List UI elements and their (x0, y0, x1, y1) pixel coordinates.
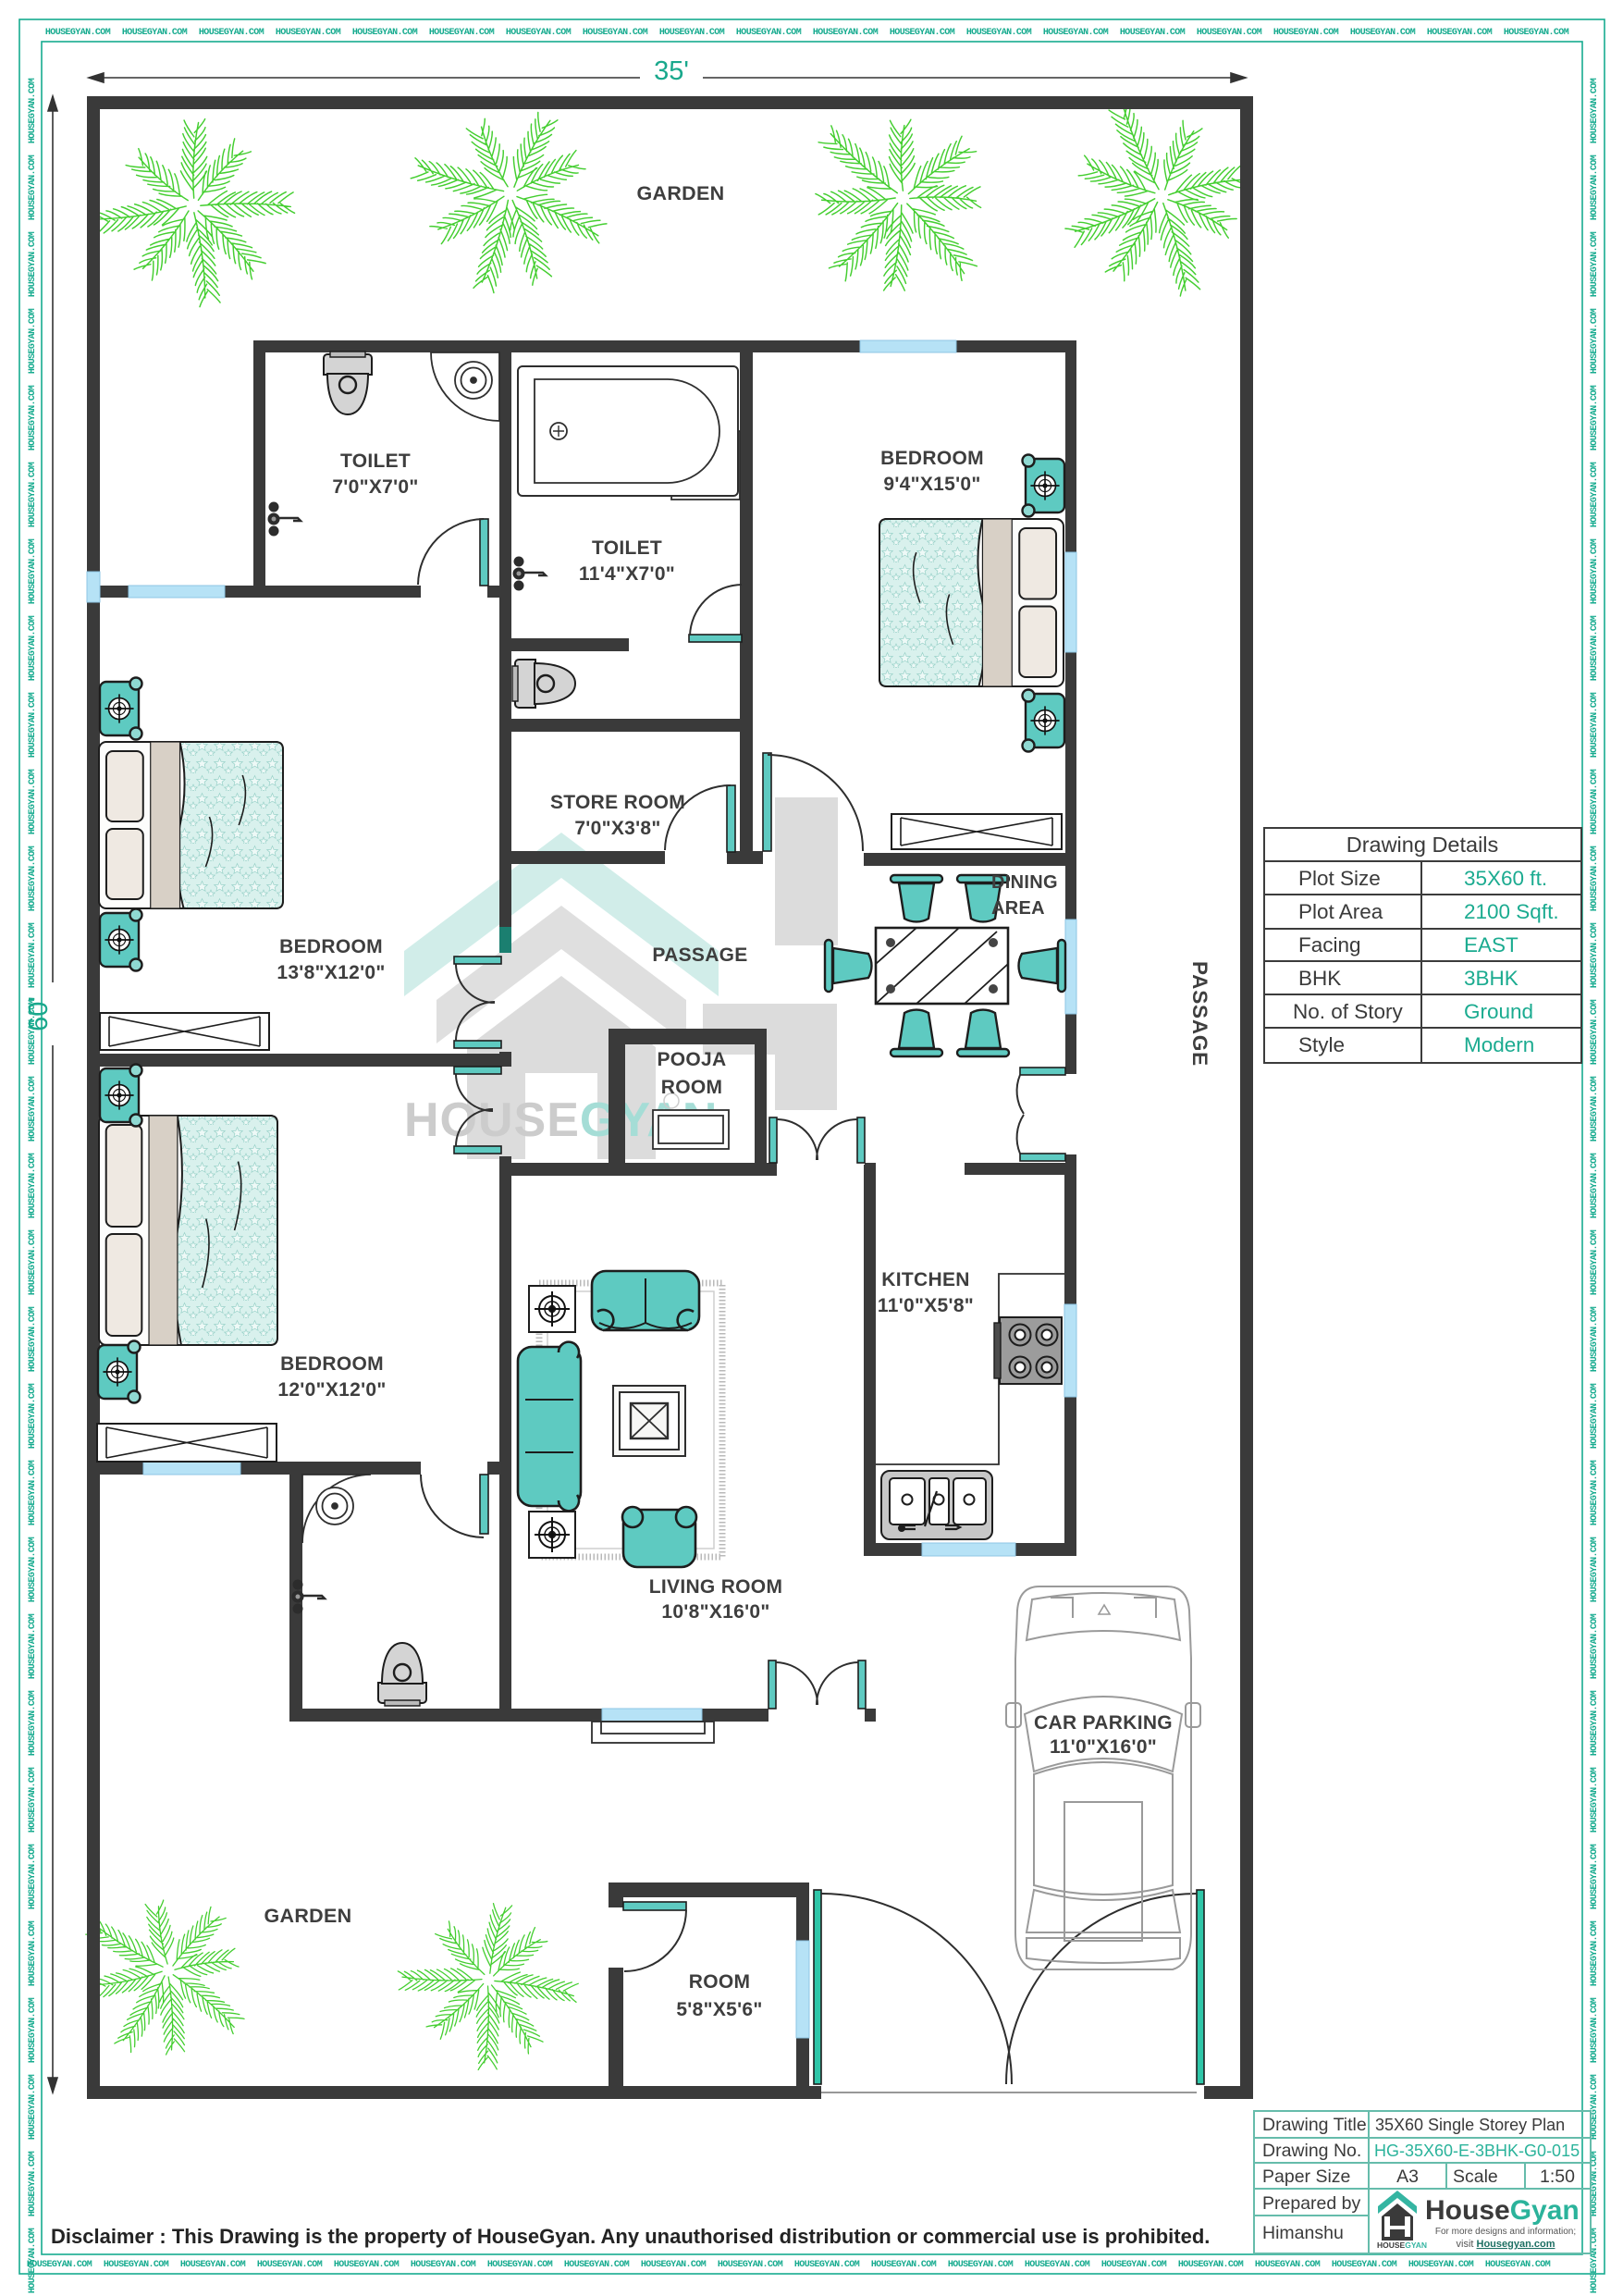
svg-text:Himanshu: Himanshu (1262, 2223, 1344, 2243)
svg-text:Facing: Facing (1298, 933, 1361, 957)
svg-text:Disclaimer : This Drawing is t: Disclaimer : This Drawing is the propert… (51, 2225, 1210, 2248)
svg-text:A3: A3 (1396, 2166, 1419, 2187)
svg-text:HOUSEGYAN: HOUSEGYAN (1377, 2240, 1427, 2250)
svg-text:Ground: Ground (1464, 1000, 1533, 1023)
svg-text:35X60 Single Storey Plan: 35X60 Single Storey Plan (1375, 2116, 1565, 2134)
svg-text:GARDEN: GARDEN (264, 1905, 352, 1927)
svg-text:EAST: EAST (1464, 933, 1518, 957)
svg-text:Plot Area: Plot Area (1298, 900, 1383, 923)
svg-text:Modern: Modern (1464, 1033, 1534, 1056)
svg-text:Style: Style (1298, 1033, 1345, 1056)
svg-text:Drawing Title: Drawing Title (1262, 2115, 1367, 2135)
svg-text:HG-35X60-E-3BHK-G0-015: HG-35X60-E-3BHK-G0-015 (1374, 2142, 1580, 2160)
svg-text:Drawing Details: Drawing Details (1346, 833, 1499, 857)
svg-text:35': 35' (654, 56, 689, 86)
svg-text:For more designs and informati: For more designs and information; (1435, 2227, 1576, 2237)
svg-text:35X60 ft.: 35X60 ft. (1464, 867, 1547, 890)
svg-text:60': 60' (24, 996, 54, 1031)
svg-text:PASSAGE: PASSAGE (652, 944, 747, 966)
svg-text:GARDEN: GARDEN (637, 182, 725, 204)
svg-text:BHK: BHK (1298, 967, 1341, 990)
svg-text:Paper Size: Paper Size (1262, 2166, 1350, 2187)
svg-text:No. of Story: No. of Story (1293, 1000, 1404, 1023)
svg-text:Prepared by: Prepared by (1262, 2193, 1360, 2214)
svg-text:1:50: 1:50 (1540, 2166, 1575, 2187)
svg-text:PASSAGE: PASSAGE (1188, 961, 1211, 1067)
svg-text:Scale: Scale (1453, 2166, 1498, 2187)
svg-text:Drawing No.: Drawing No. (1262, 2141, 1361, 2161)
svg-text:Plot Size: Plot Size (1298, 867, 1381, 890)
svg-text:HouseGyan: HouseGyan (1425, 2195, 1580, 2226)
svg-text:3BHK: 3BHK (1464, 967, 1518, 990)
svg-text:2100 Sqft.: 2100 Sqft. (1464, 900, 1559, 923)
svg-text:visit Housegyan.com: visit Housegyan.com (1457, 2239, 1555, 2250)
